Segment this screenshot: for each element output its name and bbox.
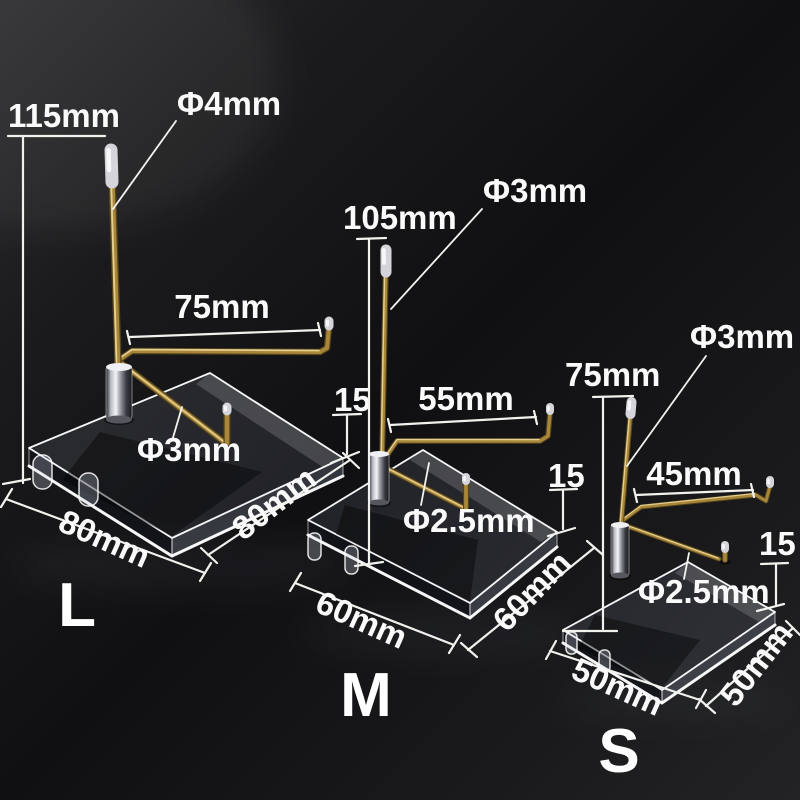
m-size-label: M — [340, 661, 392, 730]
m-height-label: 105mm — [343, 199, 457, 236]
m-thickness-label: 15 — [548, 457, 585, 494]
s-height-label: 75mm — [565, 356, 660, 393]
rubber-foot-medium-2 — [345, 546, 358, 574]
chrome-collar-medium — [369, 451, 389, 506]
l-thickness-label: 15 — [334, 381, 371, 418]
s-thickness-top-tick — [761, 563, 788, 564]
front-peg-small — [724, 545, 726, 560]
l-size-label: L — [58, 571, 96, 640]
rubber-foot-large-2 — [79, 473, 98, 506]
m-tip-diameter-label: Φ3mm — [483, 172, 587, 209]
m-height-top-tick — [357, 238, 386, 239]
s-tip-diameter-label: Φ3mm — [690, 318, 794, 355]
rubber-foot-small-1 — [566, 632, 577, 654]
product-photo-display-stands: 115mm Φ4mm 75mm Φ3mm 15 80mm 80mm L 105m… — [0, 0, 800, 800]
l-tip-diameter-label: Φ4mm — [177, 85, 281, 122]
chrome-collar-small — [611, 522, 629, 579]
photo-canvas: 115mm Φ4mm 75mm Φ3mm 15 80mm 80mm L 105m… — [0, 0, 800, 800]
s-thickness-label: 15 — [759, 525, 796, 562]
s-arm-length-label: 45mm — [646, 455, 741, 492]
s-height-top-tick — [593, 396, 633, 397]
rubber-foot-large-1 — [33, 455, 52, 489]
rubber-foot-medium-1 — [308, 533, 321, 560]
s-rod-diameter-label: Φ2.5mm — [638, 573, 770, 610]
s-size-label: S — [598, 717, 639, 786]
m-rod-diameter-label: Φ2.5mm — [403, 502, 535, 539]
l-rod-diameter-label: Φ3mm — [137, 431, 241, 468]
m-arm-length-label: 55mm — [418, 380, 513, 417]
chrome-collar-large — [106, 363, 132, 424]
l-height-label: 115mm — [8, 97, 120, 134]
l-arm-length-label: 75mm — [174, 288, 269, 325]
